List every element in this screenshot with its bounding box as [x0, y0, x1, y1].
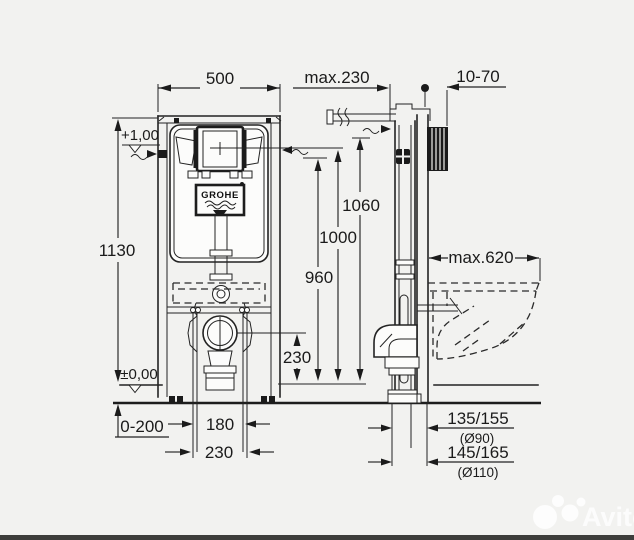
dim-floor-range-label: 0-200: [120, 417, 163, 436]
dim-stud-230-label: 230: [205, 443, 233, 462]
dim-drain-110-label: 145/165: [447, 443, 508, 462]
drain-elbow-side: [374, 325, 419, 403]
dimension-0-200: 0-200: [115, 404, 170, 437]
level-mark-icon: [129, 385, 141, 393]
flush-sleeve: [427, 127, 448, 171]
flush-window: [194, 127, 247, 171]
dim-sleeve-label: 10-70: [456, 67, 499, 86]
dim-stud-180-label: 180: [206, 415, 234, 434]
dimension-500: 500: [158, 69, 280, 112]
meter-mark: +1,00: [121, 127, 160, 160]
toilet-bowl-outline: [428, 283, 540, 359]
dimension-10-70: 10-70: [421, 67, 506, 126]
floor-level-mark: ±0,00: [120, 366, 157, 393]
technical-drawing: GROHE: [0, 0, 634, 540]
wavy-arrow-right-icon: [363, 125, 391, 134]
frame-side-view: [327, 104, 462, 466]
brand-label: GROHE: [201, 190, 239, 201]
dim-drain-110-dia-label: (Ø110): [457, 465, 498, 480]
dimension-drain-110: 145/165 (Ø110): [368, 443, 514, 480]
fixing-block: [396, 149, 410, 164]
dimension-drain-90: 135/155 (Ø90): [368, 409, 514, 446]
watermark-label: Avito: [582, 502, 634, 532]
dim-height-label: 1130: [99, 241, 136, 260]
dim-wall-offset-label: max.230: [304, 68, 369, 87]
dim-960-label: 960: [305, 268, 333, 287]
dim-1060-label: 1060: [342, 196, 380, 215]
meter-notch: [158, 150, 167, 158]
dimension-max620: max.620: [429, 248, 540, 281]
cistern: GROHE: [170, 125, 268, 303]
avito-watermark: Avito: [533, 495, 634, 532]
dim-1000-label: 1000: [319, 228, 357, 247]
avito-logo-icon: [533, 505, 557, 529]
dot-marker: [421, 84, 429, 92]
dimension-1130: 1130: [99, 118, 158, 382]
dim-drain-height-label: 230: [283, 348, 311, 367]
dimension-230-drain: 230: [283, 334, 311, 381]
bottom-edge-bar: [0, 535, 634, 540]
wavy-arrow-left2-icon: [282, 146, 308, 155]
drain-outlet: [188, 303, 306, 458]
dim-drain-90-label: 135/155: [447, 409, 508, 428]
dim-bowl-depth-label: max.620: [448, 248, 513, 267]
meter-mark-label: +1,00: [121, 127, 159, 144]
floor-level-label: ±0,00: [120, 366, 157, 383]
dimension-max230: max.230: [293, 68, 390, 114]
dimension-180: 180: [168, 415, 270, 434]
grohe-logo: GROHE: [196, 182, 244, 215]
dim-width-label: 500: [206, 69, 234, 88]
level-mark-icon: [129, 145, 141, 153]
dimension-230-bottom: 230: [165, 443, 274, 462]
